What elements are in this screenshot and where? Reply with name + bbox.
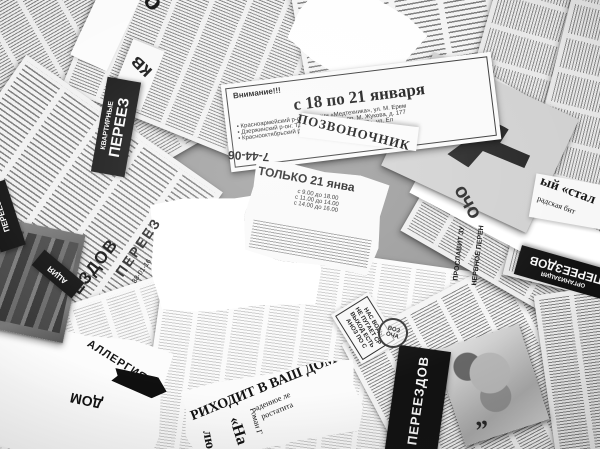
naquote-letters: «На [226,415,250,447]
kv-headline: кв [126,52,156,82]
newspaper-collage-photo: осква кв КВАРТИРНЫЕ ПЕРЕЕЗ Внимание!!! с… [0,0,600,449]
phone-number-upside-down: 7-44-06 [228,149,270,163]
pereez-vertical-text: ПЕРЕЕЗ [0,199,12,232]
lyu-letters: лю [199,429,216,449]
pereezdov-vertical-text: ПЕРЕЕЗДОВ [404,355,431,446]
